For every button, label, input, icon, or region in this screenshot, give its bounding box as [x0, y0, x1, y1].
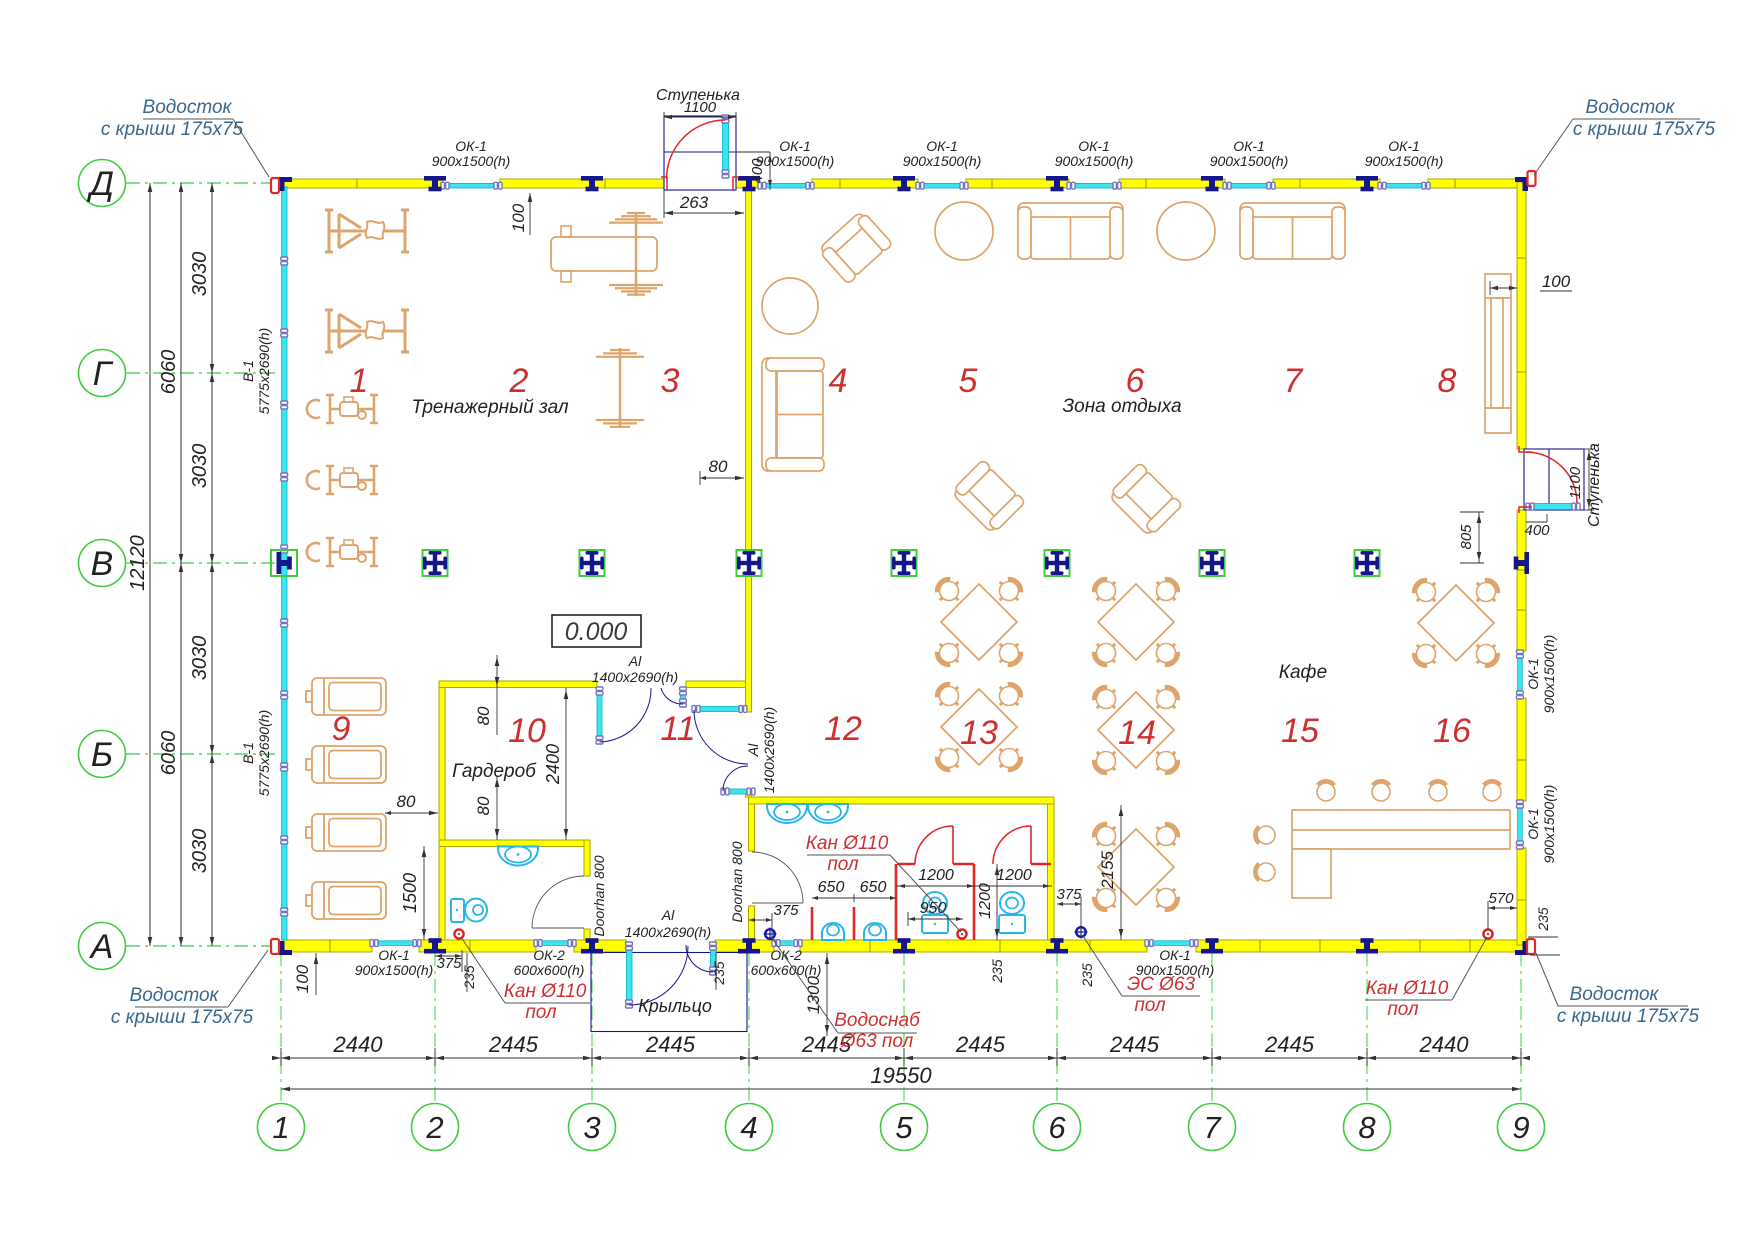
svg-text:1200: 1200: [996, 867, 1032, 884]
svg-text:6060: 6060: [158, 731, 180, 776]
svg-text:375: 375: [436, 955, 462, 972]
svg-text:100: 100: [509, 203, 528, 232]
svg-text:80: 80: [474, 706, 493, 725]
svg-text:Ступенька: Ступенька: [656, 87, 740, 104]
svg-text:3030: 3030: [189, 252, 211, 297]
svg-text:235: 235: [711, 961, 727, 986]
svg-text:ОК-1: ОК-1: [779, 138, 811, 154]
svg-text:ОК-1: ОК-1: [1388, 138, 1420, 154]
svg-text:Ступенька: Ступенька: [1586, 443, 1603, 527]
svg-text:В: В: [91, 545, 114, 583]
svg-text:1400х2690(h): 1400х2690(h): [592, 669, 678, 685]
svg-text:Ø63 пол: Ø63 пол: [840, 1031, 914, 1052]
svg-text:0.000: 0.000: [565, 618, 628, 646]
svg-text:Al: Al: [628, 653, 642, 669]
svg-text:Водосток: Водосток: [143, 97, 233, 118]
svg-text:3030: 3030: [189, 636, 211, 681]
svg-text:13: 13: [960, 714, 998, 752]
svg-text:2440: 2440: [333, 1032, 384, 1057]
svg-text:14: 14: [1118, 714, 1156, 752]
svg-text:2440: 2440: [1419, 1032, 1470, 1057]
svg-text:пол: пол: [1134, 995, 1166, 1016]
svg-text:100: 100: [1542, 272, 1571, 291]
svg-text:1200: 1200: [918, 867, 954, 884]
svg-text:В-1: В-1: [240, 742, 256, 764]
svg-text:пол: пол: [827, 854, 859, 875]
svg-text:4: 4: [829, 362, 848, 400]
svg-text:600х600(h): 600х600(h): [751, 962, 822, 978]
svg-text:950: 950: [920, 900, 947, 917]
svg-text:80: 80: [397, 792, 416, 811]
svg-text:650: 650: [818, 879, 845, 896]
svg-text:2400: 2400: [543, 744, 563, 785]
svg-text:В-1: В-1: [240, 360, 256, 382]
svg-text:ОК-1: ОК-1: [1078, 138, 1110, 154]
svg-text:Крыльцо: Крыльцо: [638, 996, 712, 1016]
svg-text:ОК-1: ОК-1: [1233, 138, 1265, 154]
svg-text:Д: Д: [86, 165, 114, 203]
svg-text:1400х2690(h): 1400х2690(h): [761, 707, 777, 793]
svg-text:2155: 2155: [1098, 851, 1117, 890]
svg-text:ОК-1: ОК-1: [455, 138, 487, 154]
svg-text:2445: 2445: [645, 1032, 696, 1057]
svg-text:3030: 3030: [189, 829, 211, 874]
svg-text:3: 3: [661, 362, 680, 400]
svg-text:2: 2: [509, 362, 529, 400]
svg-text:2445: 2445: [1264, 1032, 1315, 1057]
svg-text:ЭС Ø63: ЭС Ø63: [1127, 974, 1196, 995]
svg-text:3: 3: [583, 1110, 600, 1145]
svg-text:ОК-1: ОК-1: [926, 138, 958, 154]
svg-text:6: 6: [1048, 1110, 1066, 1145]
svg-text:1100: 1100: [1567, 466, 1584, 499]
svg-text:570: 570: [1488, 890, 1514, 907]
svg-text:Кан Ø110: Кан Ø110: [806, 833, 889, 854]
svg-text:Б: Б: [91, 736, 113, 774]
svg-text:263: 263: [679, 193, 709, 212]
svg-text:235: 235: [461, 965, 477, 990]
svg-text:с крыши 175х75: с крыши 175х75: [1557, 1006, 1700, 1027]
svg-text:400: 400: [1524, 522, 1550, 539]
svg-text:Зона отдыха: Зона отдыха: [1062, 396, 1181, 417]
svg-text:80: 80: [709, 457, 728, 476]
svg-text:900х1500(h): 900х1500(h): [1541, 785, 1557, 864]
svg-text:1500: 1500: [400, 873, 420, 913]
svg-text:12: 12: [824, 710, 862, 748]
svg-text:1400х2690(h): 1400х2690(h): [625, 924, 711, 940]
svg-text:Кан Ø110: Кан Ø110: [504, 981, 587, 1002]
svg-text:5: 5: [959, 362, 978, 400]
svg-text:ОК-2: ОК-2: [770, 947, 802, 963]
svg-text:Водоснаб: Водоснаб: [834, 1010, 921, 1031]
svg-text:ОК-1: ОК-1: [378, 947, 410, 963]
svg-text:ОК-2: ОК-2: [533, 947, 565, 963]
svg-text:12120: 12120: [127, 535, 149, 591]
svg-text:900х1500(h): 900х1500(h): [1055, 153, 1134, 169]
svg-text:1: 1: [350, 362, 369, 400]
svg-text:с крыши 175х75: с крыши 175х75: [1573, 119, 1716, 140]
svg-text:235: 235: [1535, 907, 1551, 932]
svg-text:2: 2: [425, 1110, 443, 1145]
svg-text:100: 100: [293, 964, 312, 993]
svg-text:Doorhan 800: Doorhan 800: [591, 855, 607, 936]
svg-text:5775х2690(h): 5775х2690(h): [256, 710, 272, 796]
svg-text:805: 805: [1458, 524, 1475, 550]
svg-text:1: 1: [272, 1110, 289, 1145]
svg-text:375: 375: [773, 902, 799, 919]
svg-text:235: 235: [989, 959, 1005, 984]
svg-text:ОК-1: ОК-1: [1525, 808, 1541, 840]
svg-text:900х1500(h): 900х1500(h): [903, 153, 982, 169]
svg-text:Тренажерный зал: Тренажерный зал: [411, 397, 569, 418]
svg-text:10: 10: [508, 712, 546, 750]
svg-text:900х1500(h): 900х1500(h): [355, 962, 434, 978]
svg-text:пол: пол: [525, 1002, 557, 1023]
svg-text:8: 8: [1438, 362, 1457, 400]
svg-text:11: 11: [660, 710, 695, 748]
svg-text:900х1500(h): 900х1500(h): [1210, 153, 1289, 169]
svg-text:2445: 2445: [488, 1032, 539, 1057]
svg-text:15: 15: [1281, 712, 1319, 750]
svg-text:Кан Ø110: Кан Ø110: [1366, 978, 1449, 999]
svg-text:600х600(h): 600х600(h): [514, 962, 585, 978]
svg-text:900х1500(h): 900х1500(h): [1541, 635, 1557, 714]
svg-text:900х1500(h): 900х1500(h): [1365, 153, 1444, 169]
svg-text:Al: Al: [745, 743, 761, 757]
svg-text:6060: 6060: [158, 350, 180, 395]
svg-text:Г: Г: [93, 355, 114, 393]
svg-text:6: 6: [1126, 362, 1145, 400]
svg-text:3030: 3030: [189, 444, 211, 489]
svg-text:пол: пол: [1387, 999, 1419, 1020]
svg-text:80: 80: [474, 796, 493, 815]
svg-text:Al: Al: [661, 907, 675, 923]
svg-text:Гардероб: Гардероб: [452, 761, 537, 782]
svg-text:5775х2690(h): 5775х2690(h): [256, 328, 272, 414]
svg-text:16: 16: [1433, 712, 1471, 750]
svg-text:7: 7: [1284, 362, 1304, 400]
svg-text:ОК-1: ОК-1: [1159, 947, 1191, 963]
svg-text:4: 4: [740, 1110, 757, 1145]
svg-text:ОК-1: ОК-1: [1525, 658, 1541, 690]
svg-text:5: 5: [895, 1110, 913, 1145]
svg-text:Doorhan 800: Doorhan 800: [729, 841, 745, 922]
svg-text:Кафе: Кафе: [1279, 662, 1327, 683]
svg-text:9: 9: [1512, 1110, 1529, 1145]
svg-text:А: А: [89, 928, 114, 966]
svg-text:9: 9: [332, 710, 351, 748]
svg-text:Водосток: Водосток: [1570, 984, 1660, 1005]
svg-text:900х1500(h): 900х1500(h): [432, 153, 511, 169]
svg-text:2445: 2445: [955, 1032, 1006, 1057]
svg-text:19550: 19550: [870, 1063, 932, 1088]
svg-text:650: 650: [860, 879, 887, 896]
svg-text:Водосток: Водосток: [130, 985, 220, 1006]
svg-text:375: 375: [1056, 886, 1082, 903]
svg-text:Водосток: Водосток: [1586, 97, 1676, 118]
svg-text:235: 235: [1079, 963, 1095, 988]
svg-text:7: 7: [1203, 1110, 1222, 1145]
svg-text:900х1500(h): 900х1500(h): [756, 153, 835, 169]
svg-text:с крыши 175х75: с крыши 175х75: [111, 1007, 254, 1028]
svg-text:с крыши 175х75: с крыши 175х75: [101, 119, 244, 140]
svg-text:2445: 2445: [1109, 1032, 1160, 1057]
svg-text:1200: 1200: [977, 883, 994, 919]
svg-text:8: 8: [1358, 1110, 1376, 1145]
